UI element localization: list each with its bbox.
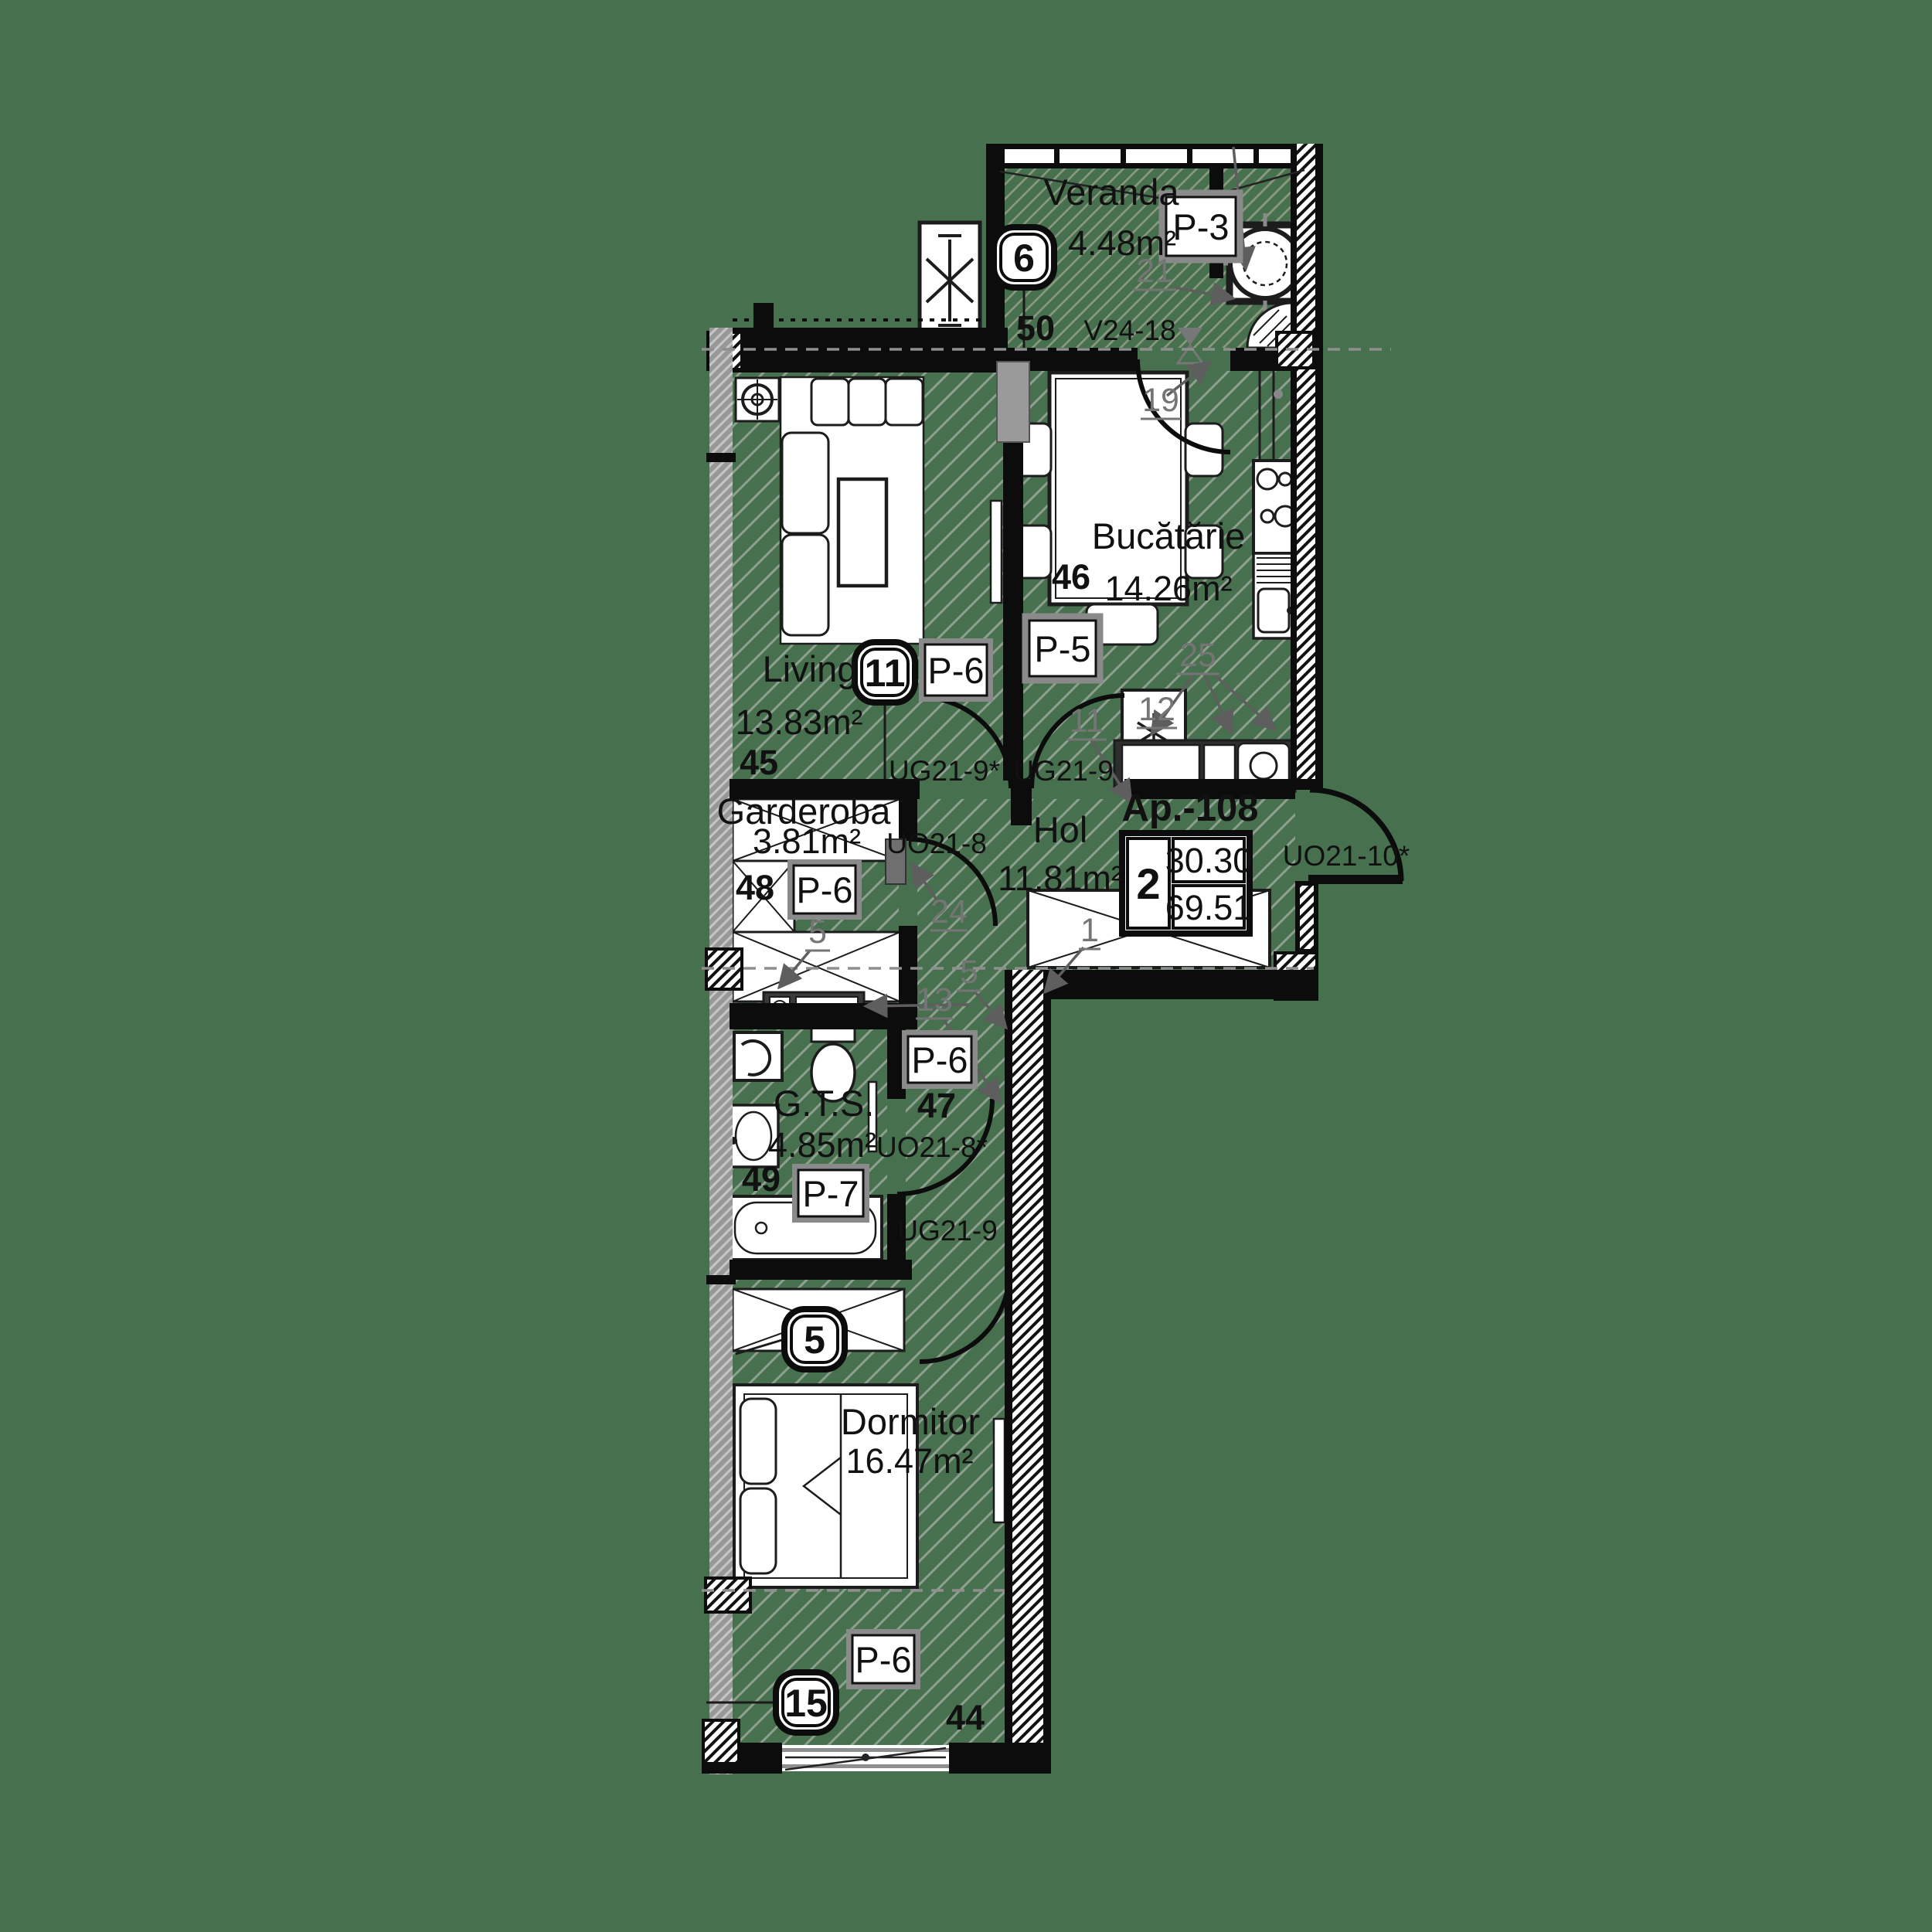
ann-counter-items: 25 — [1179, 637, 1216, 674]
sofa-cushion — [811, 379, 849, 425]
hol-bottom-wall — [1009, 970, 1318, 999]
insul-block — [706, 1578, 750, 1612]
right-wall-insulation — [1012, 970, 1043, 1774]
panel-box-p6-garderoba: P-6 — [791, 862, 859, 917]
panel-label: P-6 — [927, 650, 984, 691]
apartment-info-table: Ap.-108 2 30.30 69.51 — [1121, 787, 1258, 934]
ann-kitchen-entry: 19 — [1142, 382, 1179, 419]
sofa-cushion — [782, 433, 828, 533]
ann-boiler: 21 — [1136, 253, 1173, 290]
badge-15: 15 — [776, 1672, 836, 1733]
shaft — [997, 362, 1029, 442]
panel-label: P-5 — [1034, 628, 1090, 669]
badge-label: 5 — [804, 1318, 825, 1362]
floor-plan-page: P-3 P-5 P-6 P-6 P-6 P-7 — [0, 0, 1932, 1932]
panel-box-p5: P-5 — [1026, 617, 1100, 680]
panel-label: P-6 — [855, 1639, 911, 1680]
dormitor-area: 16.47m² — [845, 1441, 973, 1481]
sofa-cushion — [886, 379, 923, 425]
gts-door-code: UO21-8* — [876, 1131, 988, 1163]
living-zone: 45 — [740, 743, 778, 782]
panel-box-p6-corridor: P-6 — [905, 1033, 975, 1086]
badge-6: 6 — [994, 227, 1054, 287]
veranda-window-code: V24-18 — [1083, 315, 1175, 346]
panel-label: P-6 — [911, 1039, 968, 1080]
kitchen-name: Bucătărie — [1092, 515, 1246, 556]
apartment-label: Ap.-108 — [1121, 787, 1258, 829]
coffee-table — [838, 479, 886, 586]
gas-point — [1274, 389, 1283, 399]
sofa-cushion — [782, 535, 828, 635]
panel-box-p6-bottom: P-6 — [849, 1632, 917, 1686]
pillow — [740, 1488, 776, 1573]
entrance-door-leaf — [1308, 875, 1403, 884]
hol-name: Hol — [1033, 809, 1088, 850]
ann-garderoba-cabinet: 5 — [808, 913, 827, 951]
gts-zone: 49 — [742, 1159, 781, 1199]
dormitor-tv — [994, 1419, 1005, 1522]
right-wall-insulation — [1297, 144, 1315, 790]
badge-label: 6 — [1013, 236, 1035, 280]
living-area-value: 30.30 — [1165, 841, 1253, 880]
total-area-value: 69.51 — [1165, 888, 1253, 927]
sofa-cushion — [849, 379, 886, 425]
hol-area: 11.81m² — [998, 859, 1123, 898]
living-tv — [991, 501, 1002, 603]
garderoba-door-code: UO21-8 — [886, 828, 987, 859]
rooms-count: 2 — [1136, 859, 1160, 908]
ann-kitchen-counter: 11 — [1070, 702, 1104, 740]
kitchen-hol-door-code: UG21-9 — [1013, 755, 1114, 787]
ann-corridor-wall: 5 — [960, 954, 978, 991]
vent-stack — [753, 303, 774, 354]
living-area: 13.83m² — [735, 702, 862, 742]
panel-label: P-7 — [802, 1173, 859, 1214]
insul-block — [703, 1720, 739, 1764]
panel-box-p7: P-7 — [795, 1167, 866, 1219]
panel-label: P-6 — [796, 869, 852, 910]
dormitor-zone: 44 — [946, 1698, 985, 1737]
badge-5: 5 — [784, 1309, 845, 1369]
living-name: Living — [763, 648, 858, 689]
ann-fridge: 12 — [1138, 691, 1175, 728]
garderoba-zone: 48 — [736, 868, 774, 907]
veranda-zone: 50 — [1016, 308, 1055, 348]
gts-name: G.T.S. — [774, 1083, 875, 1124]
left-wall — [709, 328, 733, 1774]
panel-label: P-3 — [1172, 206, 1229, 247]
entrance-door-code: UO21-10* — [1283, 840, 1410, 872]
pillow — [740, 1399, 776, 1484]
ann-garderoba-door: 24 — [930, 893, 968, 930]
gts-area: 4.85m² — [768, 1125, 876, 1165]
veranda-name: Veranda — [1043, 172, 1179, 213]
badge-11: 11 — [855, 642, 915, 702]
living-hol-door-code: UG21-9* — [889, 755, 1000, 787]
badge-label: 11 — [865, 651, 906, 695]
badge-label: 15 — [784, 1682, 828, 1725]
kitchen-area: 14.26m² — [1104, 569, 1232, 608]
ann-vent-unit: 13 — [916, 981, 953, 1019]
ann-hol-wardrobe: 1 — [1080, 912, 1099, 949]
floor-plan: P-3 P-5 P-6 P-6 P-6 P-7 — [0, 0, 1932, 1932]
dormitor-name: Dormitor — [841, 1401, 980, 1442]
corridor-door-code: UG21-9 — [897, 1215, 998, 1247]
panel-box-p6-living: P-6 — [922, 641, 990, 699]
kitchen-zone: 46 — [1052, 557, 1090, 597]
corridor-zone: 47 — [917, 1086, 956, 1125]
garderoba-area: 3.81m² — [753, 821, 861, 861]
